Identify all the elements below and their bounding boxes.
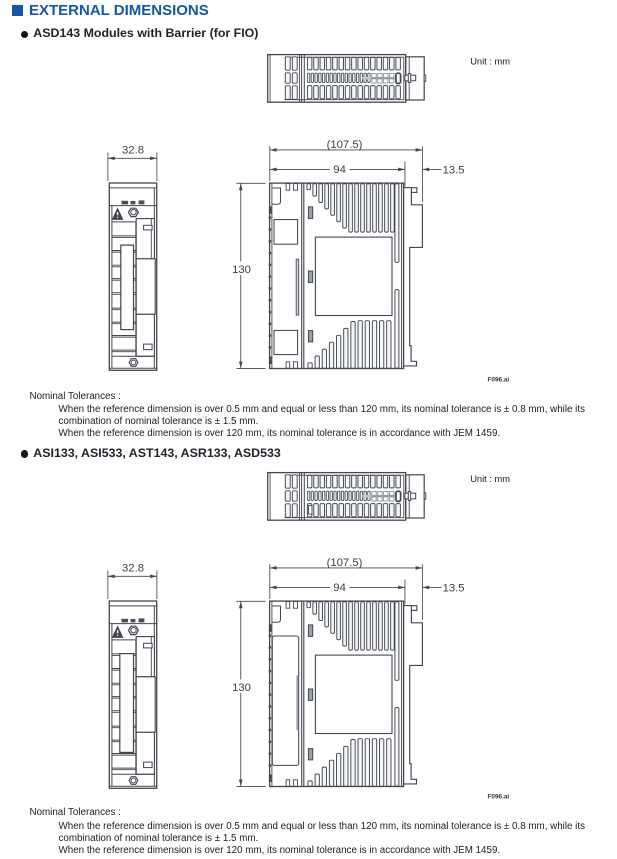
svg-text:Unit : mm: Unit : mm [470, 57, 510, 67]
svg-text:130: 130 [232, 682, 251, 694]
svg-text:32.8: 32.8 [122, 563, 144, 575]
svg-text:(107.5): (107.5) [327, 557, 363, 569]
svg-text:130: 130 [232, 264, 251, 276]
svg-text:(107.5): (107.5) [327, 139, 363, 151]
svg-text:32.8: 32.8 [122, 145, 144, 157]
svg-text:Unit : mm: Unit : mm [470, 474, 510, 484]
svg-text:F096.ai: F096.ai [488, 794, 510, 801]
svg-text:F096.ai: F096.ai [488, 377, 510, 384]
svg-text:13.5: 13.5 [443, 583, 465, 595]
svg-text:13.5: 13.5 [443, 165, 465, 177]
svg-text:94: 94 [333, 164, 346, 176]
svg-text:94: 94 [333, 582, 346, 594]
